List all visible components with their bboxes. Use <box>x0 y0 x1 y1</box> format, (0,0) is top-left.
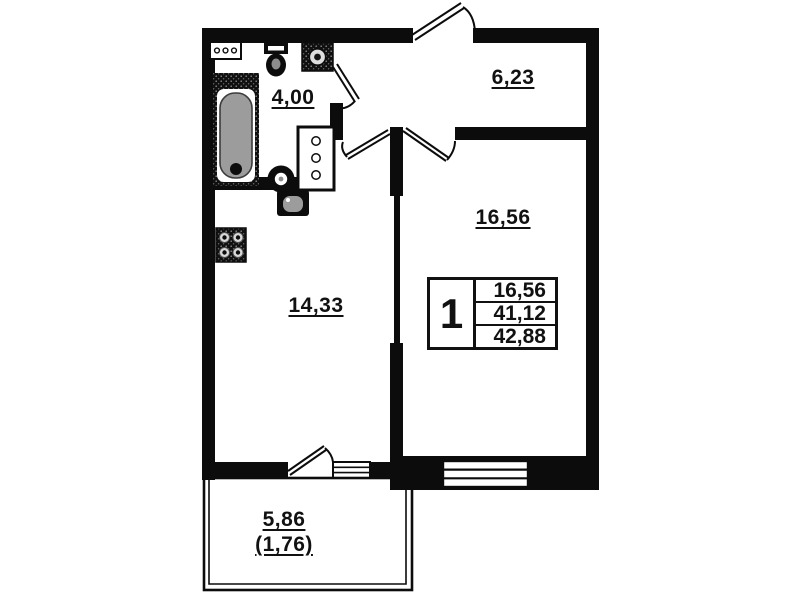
area-values: 16,56 41,12 42,88 <box>476 280 555 347</box>
ventilation-shaft-icon <box>298 127 334 190</box>
walls <box>202 28 599 490</box>
living-area-value: 16,56 <box>476 280 555 301</box>
stove-icon <box>216 228 246 262</box>
wall-hallway-bottom <box>455 127 599 140</box>
kitchen-window <box>333 462 370 478</box>
room-label-balcony: 5,86 <box>263 508 306 532</box>
apartment-info-table: 1 16,56 41,12 42,88 <box>427 277 558 350</box>
total-area-value: 42,88 <box>476 324 555 347</box>
wall-central-partition <box>394 196 400 343</box>
apartment-area-value: 41,12 <box>476 301 555 324</box>
floor-plan-drawing <box>0 0 799 600</box>
kitchen-sink-icon <box>277 190 309 216</box>
washbasin-icon <box>268 166 295 193</box>
wall-central-lower <box>390 343 403 462</box>
doors <box>288 3 475 475</box>
wall-top-right <box>473 28 599 43</box>
wall-kitchen-bottom <box>202 462 288 478</box>
room-label-kitchen: 14,33 <box>288 294 343 318</box>
bathtub-drain <box>230 163 242 175</box>
balcony-door <box>288 446 333 475</box>
balcony-inner-line <box>209 479 406 584</box>
kitchen-door <box>342 130 390 159</box>
wall-top-left <box>202 28 413 43</box>
living-room-door <box>403 128 455 161</box>
toilet-icon <box>264 43 288 77</box>
room-label-hallway: 6,23 <box>492 66 535 90</box>
radiator-icon <box>210 42 241 59</box>
fixtures <box>210 42 334 262</box>
wall-central-upper <box>390 127 403 196</box>
living-room-window <box>443 461 528 487</box>
entrance-door <box>412 3 475 40</box>
bathroom-door <box>333 64 359 108</box>
room-label-balcony-reduced: (1,76) <box>255 533 313 557</box>
floor-plan: 4,00 6,23 16,56 14,33 5,86 (1,76) 1 16,5… <box>0 0 799 600</box>
washing-machine-icon <box>302 43 333 71</box>
wall-right <box>586 28 599 480</box>
room-count-value: 1 <box>430 280 476 347</box>
room-label-living-room: 16,56 <box>475 206 530 230</box>
bathtub-icon <box>213 73 259 186</box>
room-label-bathroom: 4,00 <box>272 86 315 110</box>
